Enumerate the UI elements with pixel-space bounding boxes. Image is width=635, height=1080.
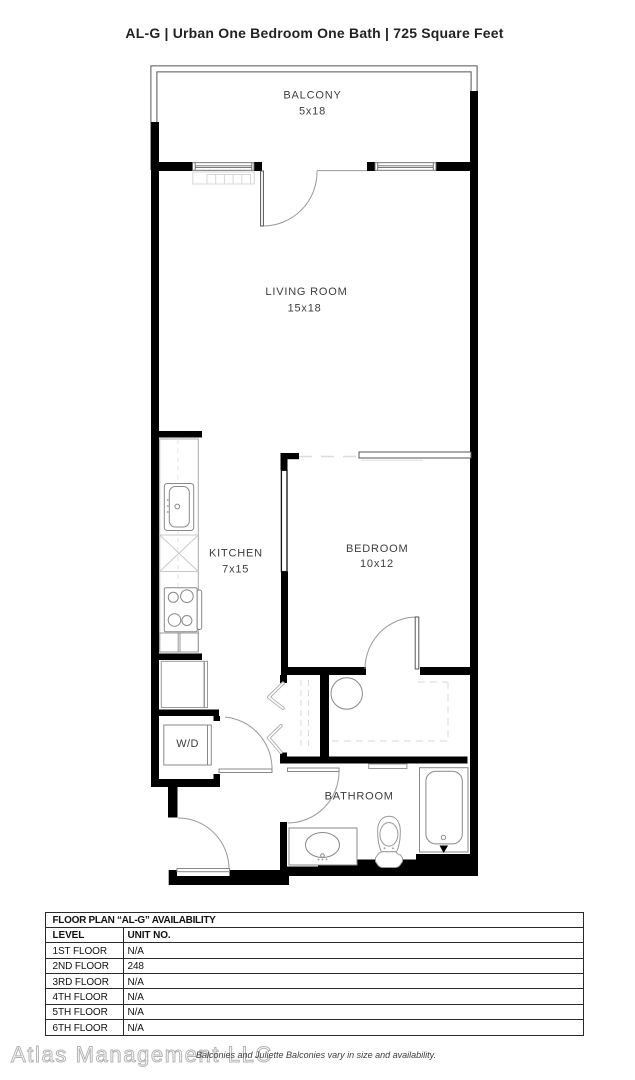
svg-text:LIVING ROOM: LIVING ROOM bbox=[265, 286, 347, 298]
svg-text:5x18: 5x18 bbox=[299, 105, 326, 117]
svg-text:7x15: 7x15 bbox=[222, 564, 249, 576]
svg-text:BALCONY: BALCONY bbox=[283, 90, 341, 102]
svg-text:15x18: 15x18 bbox=[288, 303, 322, 315]
svg-text:KITCHEN: KITCHEN bbox=[209, 548, 263, 560]
svg-text:BEDROOM: BEDROOM bbox=[346, 543, 408, 555]
svg-text:BATHROOM: BATHROOM bbox=[325, 791, 394, 803]
svg-text:W/D: W/D bbox=[176, 738, 199, 750]
svg-text:10x12: 10x12 bbox=[360, 558, 394, 570]
